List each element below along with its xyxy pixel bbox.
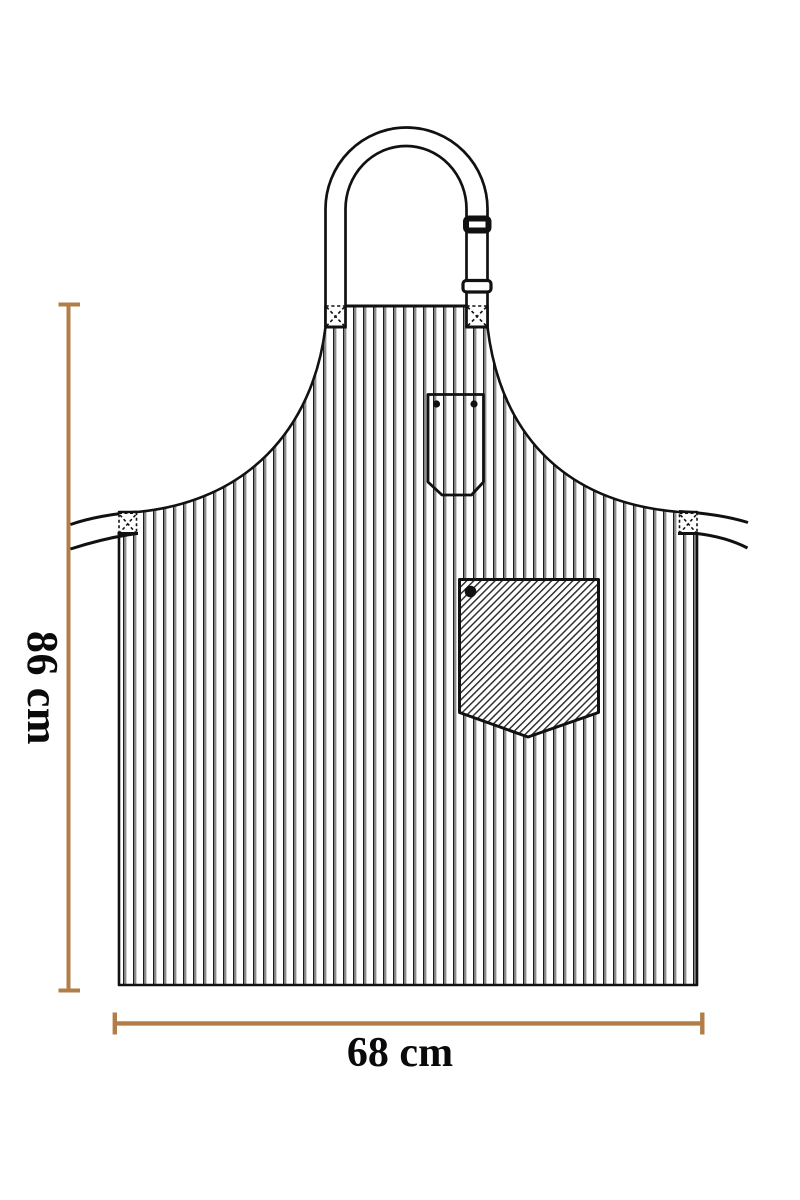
svg-text:86 cm: 86 cm	[18, 631, 67, 745]
svg-text:68 cm: 68 cm	[347, 1030, 453, 1076]
